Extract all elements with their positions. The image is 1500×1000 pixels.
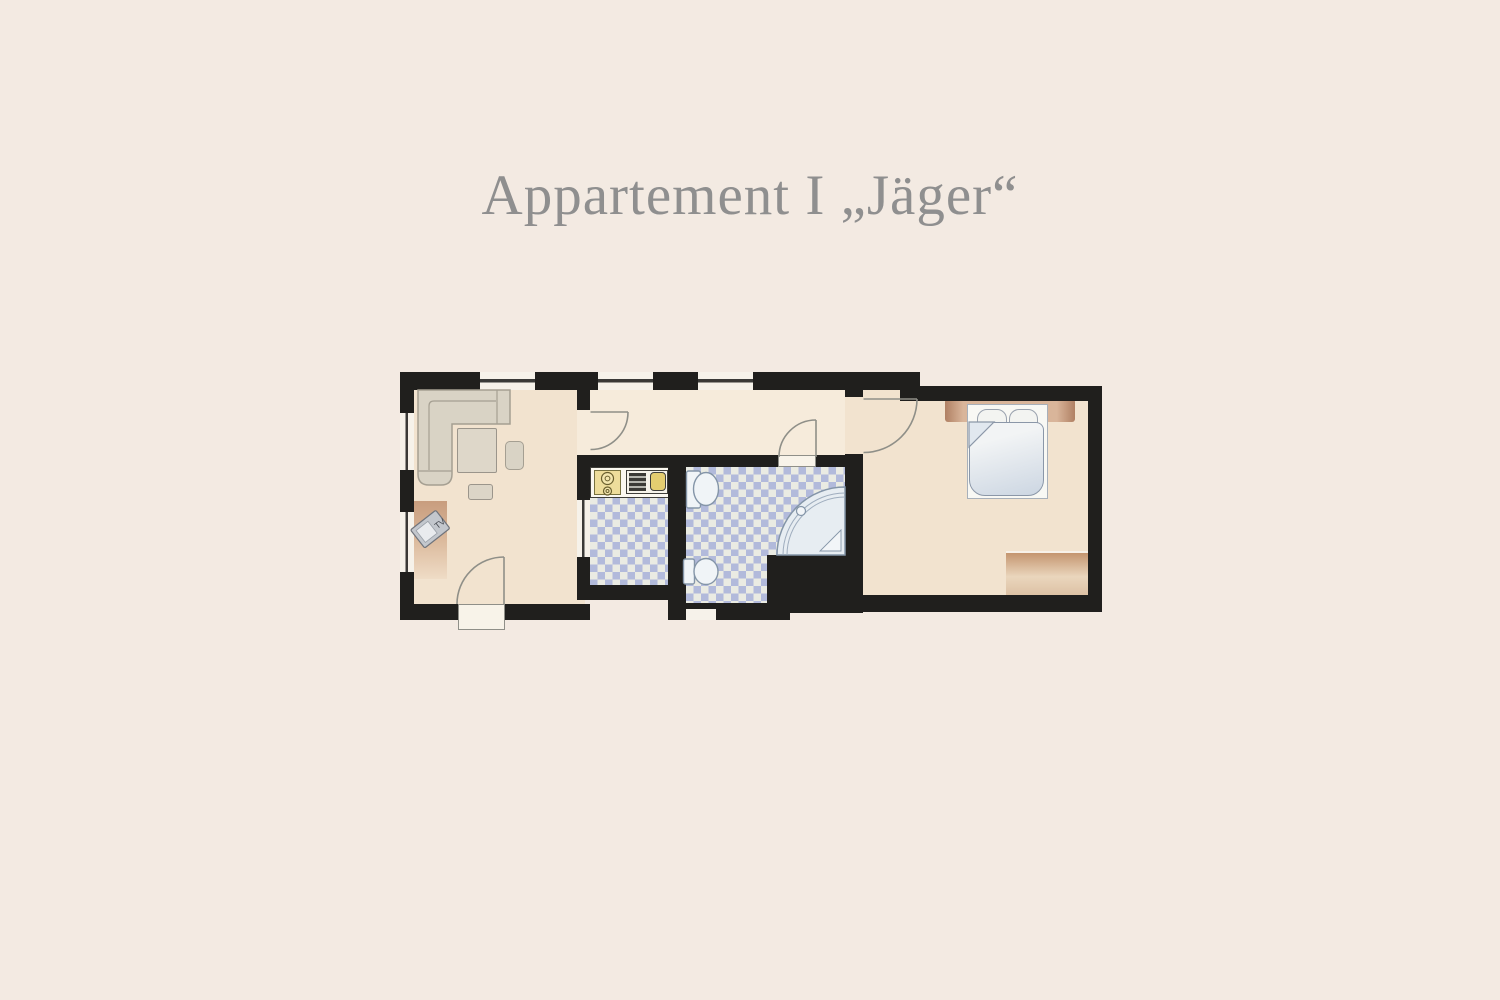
sideboard xyxy=(468,484,493,500)
wall-top-bedroom xyxy=(900,386,1102,401)
window-icon-top-3 xyxy=(698,372,753,390)
duvet xyxy=(969,422,1044,496)
entrance-door xyxy=(458,604,505,630)
coffee-table xyxy=(457,428,497,473)
bathroom-alcove-floor xyxy=(686,556,767,603)
kitchen-hatch-window-icon xyxy=(577,500,590,557)
window-icon-top-1 xyxy=(480,372,535,390)
bathroom-floor xyxy=(686,467,845,556)
window-icon-left-1 xyxy=(400,413,414,470)
armchair xyxy=(505,441,524,470)
window-icon-top-2 xyxy=(598,372,653,390)
hallway-floor xyxy=(582,378,852,462)
wall-bottom-kitchen xyxy=(577,585,686,600)
wall-left xyxy=(400,372,414,620)
stove-grill xyxy=(629,473,646,491)
alcove-vent-notch xyxy=(686,609,716,620)
bedroom-dresser xyxy=(1006,551,1088,596)
wall-kitchen-bath xyxy=(668,455,686,603)
bedroom-door-opening xyxy=(845,397,863,454)
tv-cabinet xyxy=(414,501,447,579)
window-icon-left-2 xyxy=(400,512,414,572)
wall-bottom-bedroom xyxy=(845,595,1102,612)
wall-chunk-below-shower xyxy=(767,555,845,613)
cooktop xyxy=(594,470,621,495)
kitchen-sink xyxy=(650,472,666,491)
wall-top-main xyxy=(400,372,920,390)
hall-door-opening xyxy=(577,410,590,455)
floorplan-page: Appartement I „Jäger“ xyxy=(0,0,1500,1000)
wall-right-bedroom xyxy=(1088,386,1102,612)
bathroom-doorway xyxy=(778,455,816,467)
page-title: Appartement I „Jäger“ xyxy=(0,163,1500,228)
